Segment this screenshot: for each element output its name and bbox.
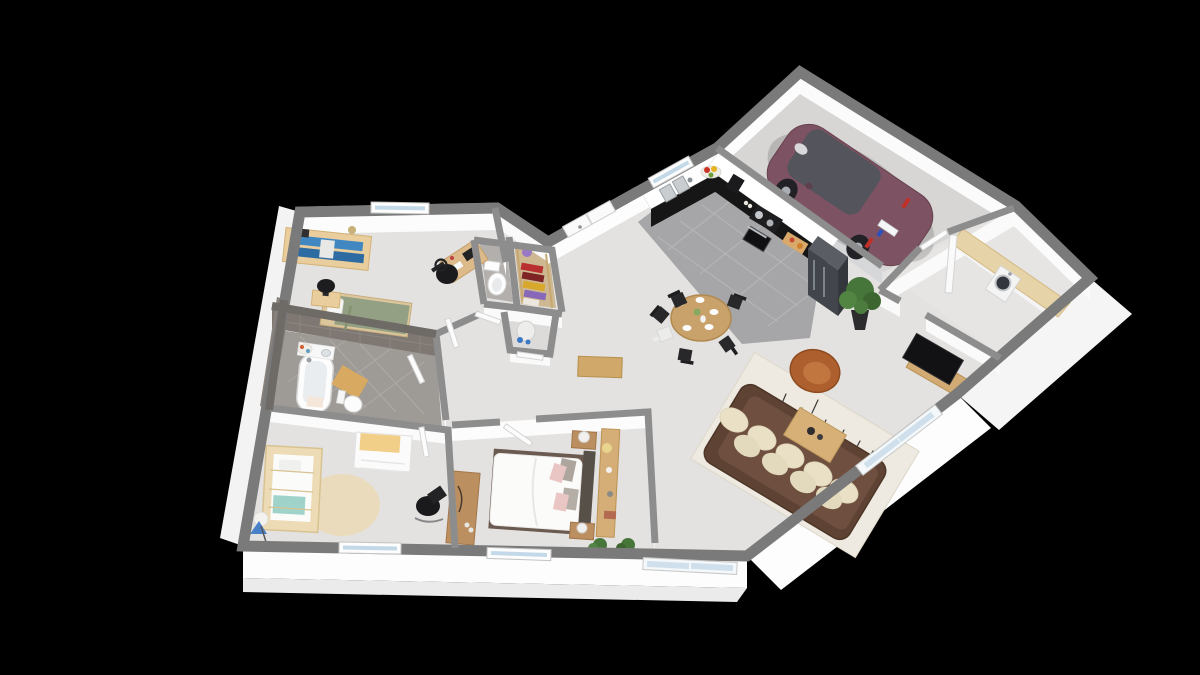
- entry-doormat: [578, 356, 623, 378]
- sink-faucet: [688, 178, 693, 183]
- fruit-red: [704, 167, 710, 173]
- spice-jar-2: [748, 204, 752, 208]
- crib-blanket: [273, 495, 306, 515]
- bathtub-faucet: [307, 358, 312, 363]
- master-lamp-n: [579, 432, 590, 443]
- shelf-lamp: [602, 443, 612, 453]
- table-carafe: [700, 315, 706, 323]
- shelf-books: [604, 511, 616, 520]
- desk-mug: [450, 256, 454, 260]
- shelf-deco-1: [606, 467, 612, 473]
- cooktop-pot-1: [755, 211, 763, 219]
- board-jam: [790, 238, 795, 243]
- coffee-table-decor-1: [807, 427, 815, 435]
- floor-plan-svg: [0, 0, 1200, 675]
- front-door-handle: [578, 225, 582, 229]
- bath-soap-1: [300, 345, 304, 349]
- shelf-deco-2: [607, 491, 613, 497]
- bath-sink: [322, 350, 331, 357]
- console-candle-1: [465, 523, 470, 528]
- fruit-yellow: [711, 166, 717, 172]
- spice-jar-1: [744, 201, 748, 205]
- plate-4: [705, 324, 714, 330]
- dresser-deco: [348, 226, 356, 234]
- console-candle-2: [469, 528, 474, 533]
- plate-3: [710, 309, 719, 315]
- changing-pad: [359, 433, 400, 453]
- nursery-lamp-ball: [254, 512, 268, 526]
- plate-5: [683, 325, 692, 331]
- plate-2: [696, 297, 705, 303]
- fruit-green: [709, 173, 714, 178]
- bathtub-towel: [307, 396, 324, 407]
- washer-door: [996, 276, 1011, 291]
- wc-toilet-tank: [484, 261, 500, 272]
- dresser-center-drawer: [319, 239, 335, 258]
- board-croissant: [797, 243, 803, 249]
- plant-leaf-4: [854, 300, 868, 314]
- master-lamp-s: [577, 523, 587, 533]
- floor-plan-3d: [0, 0, 1200, 675]
- chair-4-seat: [678, 348, 693, 362]
- storage-vacuum-accent-1: [517, 337, 523, 343]
- washer-knob: [1008, 272, 1012, 276]
- storage-vacuum-accent-2: [526, 340, 531, 345]
- cooktop-pot-2: [767, 220, 774, 227]
- table-vase-plant: [694, 309, 701, 316]
- bath-soap-2: [306, 349, 310, 353]
- bath-tray: [298, 344, 312, 354]
- bed1-lamp-shade: [317, 279, 335, 293]
- coffee-table-decor-2: [817, 434, 823, 440]
